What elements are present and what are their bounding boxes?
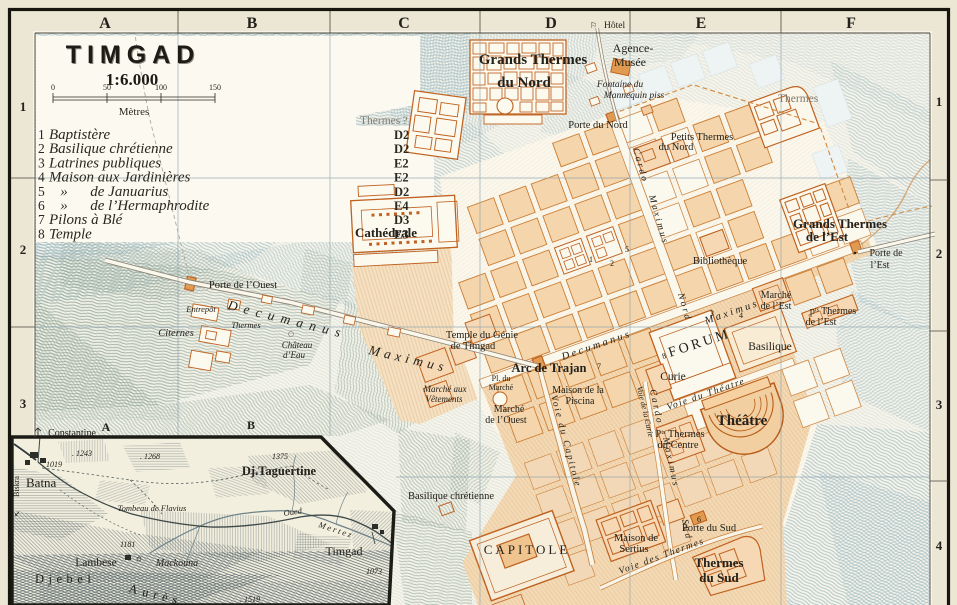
svg-text:Tombeau de Flavius: Tombeau de Flavius xyxy=(118,503,187,513)
svg-text:Mannequin piss: Mannequin piss xyxy=(603,91,665,101)
svg-text:Pᵗˢ Thermes: Pᵗˢ Thermes xyxy=(655,429,704,440)
svg-text:B: B xyxy=(247,418,255,432)
svg-text:F: F xyxy=(846,15,856,32)
svg-text:Bibliothèque: Bibliothèque xyxy=(693,256,748,267)
svg-text:du Nord: du Nord xyxy=(497,75,551,91)
svg-text:Musée: Musée xyxy=(614,55,646,69)
svg-text:E2: E2 xyxy=(394,156,409,170)
svg-text:5: 5 xyxy=(625,245,629,254)
svg-text:3: 3 xyxy=(38,155,45,170)
svg-text:Grands Thermes: Grands Thermes xyxy=(479,52,588,68)
svg-text:Citernes: Citernes xyxy=(158,328,194,339)
svg-text:3: 3 xyxy=(710,309,714,318)
svg-text:1: 1 xyxy=(936,94,943,109)
svg-text:2: 2 xyxy=(936,246,943,261)
svg-text:D2: D2 xyxy=(394,128,409,142)
svg-text:de l’Est: de l’Est xyxy=(761,301,792,312)
svg-text:⚐: ⚐ xyxy=(590,21,597,30)
svg-text:Piscina: Piscina xyxy=(566,396,595,407)
svg-text:Biskra: Biskra xyxy=(12,476,21,497)
svg-text:Pl. du: Pl. du xyxy=(492,374,511,383)
svg-text:Sertius: Sertius xyxy=(619,544,648,555)
svg-text:1019: 1019 xyxy=(46,460,62,469)
svg-text:B: B xyxy=(247,15,258,32)
svg-text:Thermes ?: Thermes ? xyxy=(360,115,408,127)
svg-text:0: 0 xyxy=(51,83,55,92)
svg-text:7: 7 xyxy=(38,212,45,227)
svg-text:100: 100 xyxy=(155,83,167,92)
svg-text:Mètres: Mètres xyxy=(119,106,150,118)
svg-text:8: 8 xyxy=(38,226,45,241)
svg-text:Fontaine du: Fontaine du xyxy=(596,80,643,90)
svg-text:Maison de la: Maison de la xyxy=(552,385,604,396)
svg-text:Basilique: Basilique xyxy=(748,341,791,353)
svg-text:de l’Ouest: de l’Ouest xyxy=(485,415,527,426)
svg-text:du Sud: du Sud xyxy=(699,570,739,585)
svg-text:TIMGAD: TIMGAD xyxy=(66,41,201,69)
svg-text:Dj.Taguertine: Dj.Taguertine xyxy=(242,464,317,478)
svg-text:Basilique chrétienne: Basilique chrétienne xyxy=(408,491,494,502)
svg-text:Porte du Sud: Porte du Sud xyxy=(682,523,737,534)
svg-text:4: 4 xyxy=(38,170,45,185)
svg-text:Porte de l’Ouest: Porte de l’Ouest xyxy=(209,280,277,291)
svg-text:du Nord: du Nord xyxy=(659,142,694,153)
svg-text:150: 150 xyxy=(209,83,221,92)
svg-text:Batna: Batna xyxy=(26,475,57,490)
svg-text:1181: 1181 xyxy=(120,540,135,549)
svg-text:1: 1 xyxy=(20,99,27,114)
svg-text:l’Est: l’Est xyxy=(871,260,890,271)
svg-text:Théâtre: Théâtre xyxy=(717,413,768,429)
svg-text:3: 3 xyxy=(20,396,27,411)
svg-text:7: 7 xyxy=(597,362,601,371)
svg-text:1: 1 xyxy=(589,255,593,264)
svg-text:D2: D2 xyxy=(394,185,409,199)
svg-text:1:6.000: 1:6.000 xyxy=(106,70,158,89)
svg-text:Marché: Marché xyxy=(761,290,792,301)
svg-text:Hôtel: Hôtel xyxy=(604,21,625,31)
svg-text:Thermes: Thermes xyxy=(231,320,261,330)
svg-text:Marché: Marché xyxy=(494,404,525,415)
svg-text:pᵗˢ Thermes: pᵗˢ Thermes xyxy=(810,306,856,317)
svg-text:A: A xyxy=(99,15,111,32)
svg-text:C: C xyxy=(398,15,410,32)
svg-text:Temple du Génie: Temple du Génie xyxy=(446,330,518,341)
svg-text:Vêtements: Vêtements xyxy=(426,394,463,404)
svg-text:↙: ↙ xyxy=(14,509,21,518)
svg-text:Entrepôt: Entrepôt xyxy=(185,304,216,314)
svg-text:d’Eau: d’Eau xyxy=(283,350,305,360)
svg-text:Porte de: Porte de xyxy=(869,248,903,259)
svg-text:5: 5 xyxy=(38,184,45,199)
svg-text:Djebel: Djebel xyxy=(35,572,95,586)
svg-text:1375: 1375 xyxy=(272,452,288,461)
svg-text:6: 6 xyxy=(38,198,45,213)
svg-text:50: 50 xyxy=(103,83,111,92)
svg-text:Cathédrale: Cathédrale xyxy=(355,225,417,240)
svg-text:Maison de: Maison de xyxy=(614,533,658,544)
svg-text:Thermes: Thermes xyxy=(694,555,743,570)
svg-text:Porte du Nord: Porte du Nord xyxy=(568,120,628,131)
svg-text:E: E xyxy=(696,15,707,32)
svg-text:. 1519: . 1519 xyxy=(240,595,260,604)
svg-text:. 1268: . 1268 xyxy=(140,452,160,461)
svg-text:Marché: Marché xyxy=(489,383,514,392)
svg-text:2: 2 xyxy=(38,141,45,156)
svg-text:de Timgad: de Timgad xyxy=(451,341,496,352)
svg-text:3: 3 xyxy=(936,397,943,412)
svg-text:Constantine: Constantine xyxy=(48,428,96,439)
svg-text:. 1243: . 1243 xyxy=(72,449,92,458)
svg-text:Curie: Curie xyxy=(660,371,686,383)
svg-text:2: 2 xyxy=(610,259,614,268)
svg-text:2: 2 xyxy=(20,242,27,257)
svg-text:D2: D2 xyxy=(394,142,409,156)
svg-text:4: 4 xyxy=(739,311,743,320)
svg-text:Arc de Trajan: Arc de Trajan xyxy=(512,361,587,375)
svg-text:Lambese: Lambese xyxy=(75,557,117,569)
svg-text:Agence-: Agence- xyxy=(613,41,654,55)
svg-text:A: A xyxy=(102,420,111,434)
svg-text:Thermes: Thermes xyxy=(778,93,819,105)
svg-text:E2: E2 xyxy=(394,171,409,185)
svg-text:1: 1 xyxy=(38,127,45,142)
svg-text:D: D xyxy=(545,15,557,32)
svg-text:Mackouna: Mackouna xyxy=(155,558,198,569)
svg-text:1073: 1073 xyxy=(366,567,382,576)
svg-text:Château: Château xyxy=(282,340,313,350)
svg-text:du Centre: du Centre xyxy=(657,440,698,451)
svg-text:Marché aux: Marché aux xyxy=(423,384,467,394)
svg-text:Timgad: Timgad xyxy=(326,544,363,558)
svg-text:de l’Est: de l’Est xyxy=(806,229,849,244)
svg-text:Temple: Temple xyxy=(49,226,92,242)
svg-text:CAPITOLE: CAPITOLE xyxy=(484,542,571,557)
svg-text:4: 4 xyxy=(936,538,943,553)
svg-text:E4: E4 xyxy=(394,199,409,213)
svg-text:de l’Est: de l’Est xyxy=(806,317,837,328)
